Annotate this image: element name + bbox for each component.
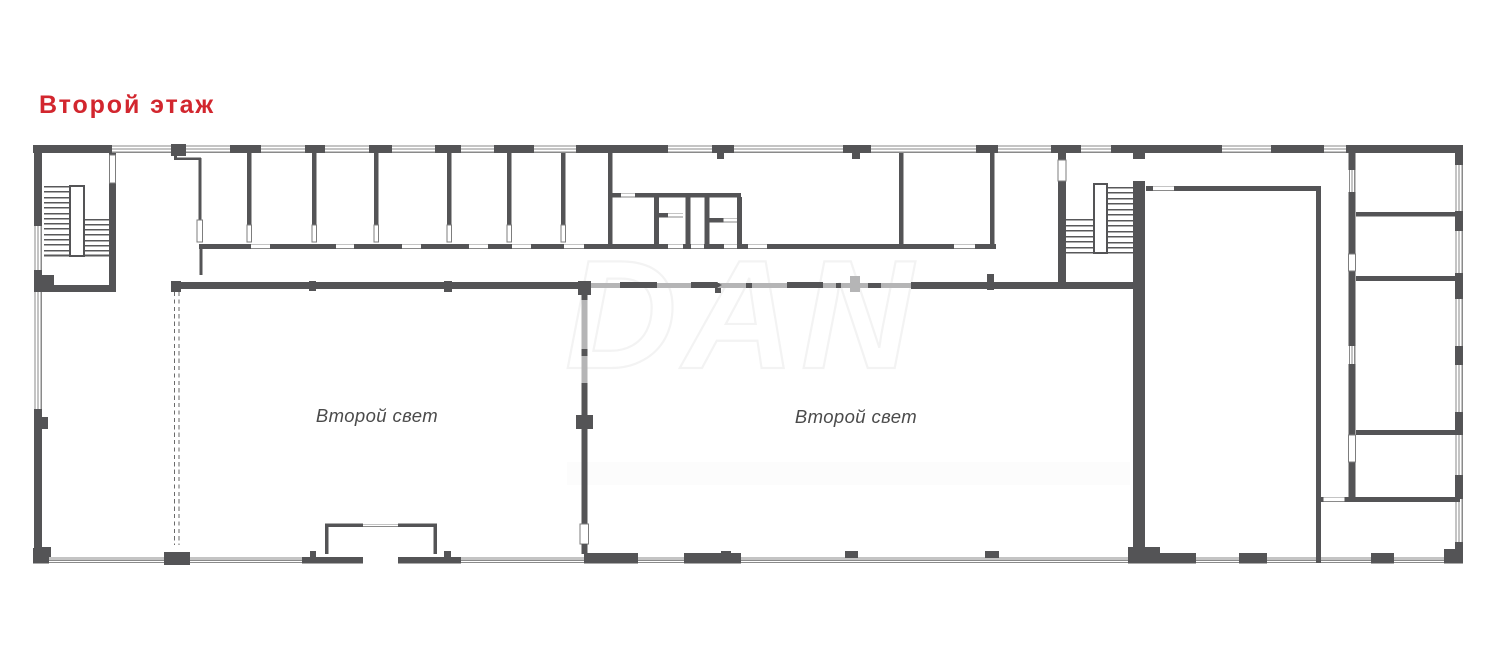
svg-text:Второй этаж: Второй этаж: [39, 91, 215, 119]
svg-text:Второй свет: Второй свет: [316, 405, 438, 426]
svg-text:Второй свет: Второй свет: [795, 406, 917, 427]
svg-text:DAN: DAN: [565, 228, 919, 401]
